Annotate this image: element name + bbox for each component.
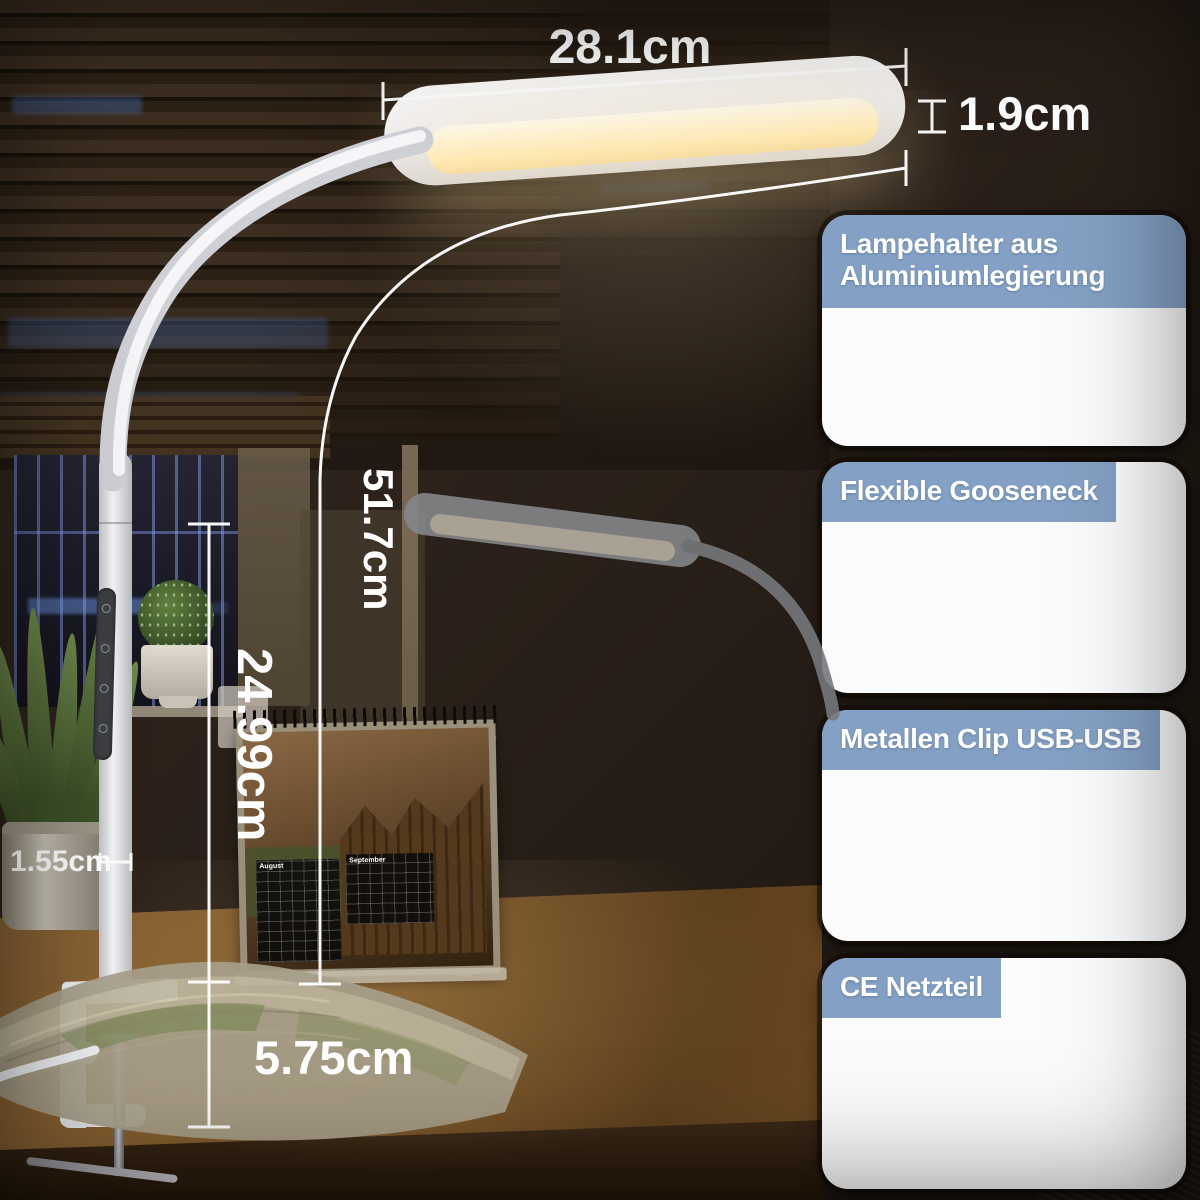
thickness-dimension-marker [918,101,946,132]
width-dimension-label: 28.1cm [480,20,780,75]
clamp-dimension-line [188,982,230,1127]
dimension-lines [0,0,1200,1200]
pole-height-dimension-label: 24.99cm [226,648,282,841]
overall-height-dimension-label: 51.7cm [354,468,402,610]
product-image: August September [0,0,1200,1200]
thickness-dimension-label: 1.9cm [958,86,1091,141]
clamp-opening-dimension-label: 5.75cm [254,1030,413,1085]
pole-diameter-dimension-label: 1.55cm [10,845,112,879]
pole-height-dimension-line [188,524,230,982]
